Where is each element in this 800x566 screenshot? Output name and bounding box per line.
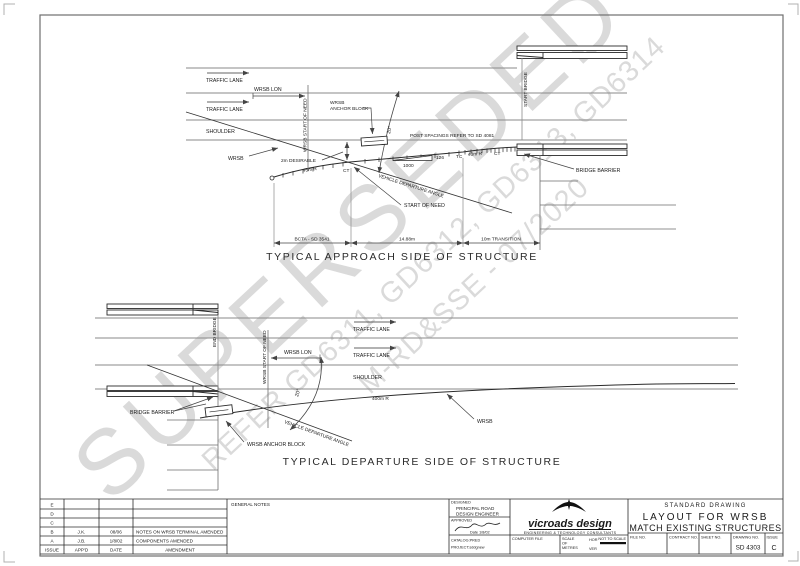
vicroads-eagle-icon [552, 499, 586, 512]
approach-bridge-barrier: BRIDGE BARRIER [576, 168, 621, 174]
general-notes-label: GENERAL NOTES [231, 502, 270, 507]
file-no-label: FILE NO. [630, 536, 646, 540]
drawing-no-value: SD 4303 [736, 545, 761, 552]
drawing-title-2: MATCH EXISTING STRUCTURES [629, 523, 781, 533]
scale-hor: HOR [589, 538, 598, 542]
rev-header-amendment: AMENDMENT [165, 548, 195, 553]
wrsb-leader [249, 148, 278, 156]
approach-start-bridge: START BRIDGE [523, 72, 529, 107]
approved-label: APPROVED [451, 519, 472, 523]
project-value: PROJECT:sddgnew [451, 546, 485, 550]
scale-word-2: OF [562, 542, 568, 546]
superseded-watermark: SUPERSEDED REFER GD6311, GD6312, GD6313,… [54, 0, 706, 566]
rev-appd-a: J.B. [78, 539, 86, 544]
issue-value: C [771, 545, 776, 552]
drawing-identity: STANDARD DRAWING LAYOUT FOR WRSB MATCH E… [629, 503, 781, 552]
standard-drawing-sheet: SUPERSEDED REFER GD6311, GD6312, GD6313,… [0, 0, 800, 566]
rev-issue-c: C [50, 521, 54, 526]
corner-mark-bottom-left [4, 551, 15, 562]
wrsb-terminal-end [270, 176, 274, 180]
approach-start-of-need: START OF NEED [404, 203, 445, 209]
approach-wrsb-start-of-need: WRSB START OF NEED [303, 98, 309, 152]
title-block: E D C B A J.K. J.B. 08/06 1/8/02 NOTES O… [40, 499, 783, 554]
departure-traffic-lane-1: TRAFFIC LANE [353, 327, 390, 333]
approach-post-spacings: POST SPACINGS REFER TO SD 4081 [410, 133, 494, 139]
drawing-title-1: LAYOUT FOR WRSB [643, 512, 769, 523]
logo-tagline: ENGINEERING & TECHNOLOGY CONSULTANTS [524, 531, 617, 535]
scale-box: SCALE OF METRES HOR VER NOT TO SCALE [562, 537, 626, 551]
approach-shoulder: SHOULDER [206, 129, 235, 135]
not-to-scale-bar [600, 542, 626, 544]
computer-file-label: COMPUTER FILE [512, 537, 543, 541]
rev-amendment-b: NOTES ON WRSB TERMINAL AMENDED [136, 530, 224, 535]
approach-radius-left: 45m R [302, 166, 317, 174]
dim-length: 14.88m [399, 237, 415, 243]
approach-ct-right: CT [494, 151, 500, 157]
taper-rise: 126 [436, 155, 444, 161]
logo-name: vicroads design [528, 518, 612, 530]
rev-date-a: 1/8/02 [110, 539, 123, 544]
departure-end-bridge: END BRIDGE [212, 317, 218, 347]
designed-value-1: PRINCIPAL ROAD [456, 506, 495, 511]
approved-date: Date 1/8/02 [470, 531, 490, 535]
rev-issue-a: A [50, 539, 54, 544]
scale-ver: VER [589, 547, 597, 551]
contract-no-label: CONTRACT NO. [669, 536, 698, 540]
departure-traffic-lane-2: TRAFFIC LANE [353, 353, 390, 359]
taper-run: 1000 [403, 163, 414, 169]
approach-wrsb-lon: WRSB LON [254, 87, 282, 93]
issue-label: ISSUE [767, 536, 779, 540]
approach-ct-left: CT [343, 168, 349, 174]
approach-anchor-label-2: ANCHOR BLOCK [330, 106, 369, 112]
departure-radius: 400m R [372, 396, 389, 402]
rev-appd-b: J.K. [78, 530, 86, 535]
approach-anchor-block [361, 136, 387, 146]
scale-word-1: SCALE [562, 537, 575, 541]
desirable-leader [322, 152, 343, 160]
departure-title: TYPICAL DEPARTURE SIDE OF STRUCTURE [283, 456, 562, 468]
corner-mark-bottom-right [788, 551, 798, 561]
scale-word-3: METRES [562, 546, 578, 550]
approach-traffic-lane-2: TRAFFIC LANE [206, 107, 243, 113]
approach-anchor-label-1: WRSB [330, 100, 344, 106]
not-to-scale: NOT TO SCALE [598, 537, 626, 541]
designed-box: DESIGNED PRINCIPAL ROAD DESIGN ENGINEER … [451, 501, 500, 550]
departure-shoulder: SHOULDER [353, 375, 382, 381]
rev-issue-d: D [50, 512, 54, 517]
rev-issue-b: B [50, 530, 53, 535]
departure-wrsb-lon: WRSB LON [284, 350, 312, 356]
rev-header-issue: ISSUE [45, 548, 59, 553]
corner-mark-top-left [4, 4, 15, 15]
approach-desirable: 2m DESIRABLE [281, 158, 316, 164]
dim-transition: 10m TRANSITION [481, 237, 521, 243]
departure-anchor-label: WRSB ANCHOR BLOCK [247, 442, 306, 448]
corner-mark-top-right [788, 4, 798, 15]
departure-wrsb-start-of-need: WRSB START OF NEED [262, 330, 268, 384]
rev-date-b: 08/06 [110, 530, 122, 535]
departure-bridge-barrier: BRIDGE BARRIER [130, 410, 175, 416]
rev-header-appd: APP'D [75, 548, 89, 553]
approach-tc: TC [456, 154, 463, 160]
sheet-no-label: SHEET NO. [701, 536, 721, 540]
approach-wrsb-label: WRSB [228, 156, 244, 162]
drawing-no-label: DRAWING NO. [733, 536, 759, 540]
standard-drawing-label: STANDARD DRAWING [664, 503, 746, 509]
departure-wrsb-label: WRSB [477, 419, 493, 425]
rev-amendment-a: COMPONENTS AMENDED [136, 539, 194, 544]
designed-value-2: DESIGN ENGINEER [456, 512, 500, 517]
approach-title: TYPICAL APPROACH SIDE OF STRUCTURE [266, 251, 538, 263]
designed-label: DESIGNED [451, 501, 471, 505]
rev-issue-e: E [50, 503, 53, 508]
vicroads-logo: vicroads design ENGINEERING & TECHNOLOGY… [524, 499, 617, 535]
wrsb-leader [447, 394, 474, 419]
dim-bcta: BCTA - SD 3541 [294, 237, 329, 243]
approach-radius-right: 40m R [468, 151, 483, 158]
catalog-value: CATALOG:PRED [451, 539, 480, 543]
approach-traffic-lane-1: TRAFFIC LANE [206, 78, 243, 84]
rev-header-date: DATE [110, 548, 122, 553]
